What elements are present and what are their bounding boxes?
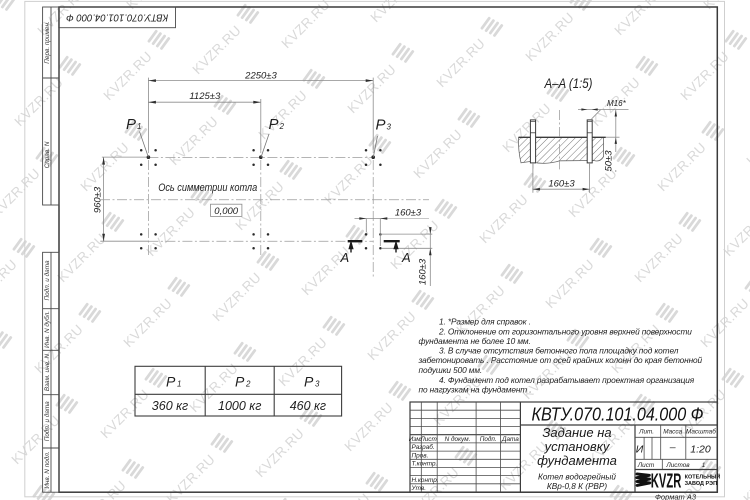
svg-text:KVZR.RU: KVZR.RU (365, 309, 419, 363)
svg-text:Перв. примен.: Перв. примен. (44, 21, 51, 63)
svg-text:Разраб.: Разраб. (412, 443, 435, 451)
svg-text:KVZR.RU: KVZR.RU (276, 335, 330, 389)
svg-text:A–A (1:5): A–A (1:5) (544, 75, 593, 91)
svg-text:KVZR.RU: KVZR.RU (342, 400, 396, 454)
svg-text:Справ. N: Справ. N (44, 141, 51, 168)
svg-text:забетонировать . Расстояние о: забетонировать . Расстояние от осей край… (418, 355, 703, 365)
svg-text:KVZR.RU: KVZR.RU (190, 23, 244, 77)
svg-text:1: 1 (702, 462, 706, 469)
svg-text:KVZR.RU: KVZR.RU (477, 192, 531, 246)
svg-text:P: P (304, 374, 314, 390)
svg-text:KVZR.RU: KVZR.RU (678, 49, 732, 103)
svg-text:KVZR.RU: KVZR.RU (78, 140, 132, 194)
svg-text:КВр-0,8 К (РВР): КВр-0,8 К (РВР) (547, 482, 607, 491)
svg-text:N докум.: N докум. (445, 435, 471, 443)
svg-text:KVZR.RU: KVZR.RU (566, 166, 620, 220)
svg-text:Подп. и дата: Подп. и дата (43, 401, 51, 441)
svg-text:KVZR.RU: KVZR.RU (322, 153, 376, 207)
svg-text:ЗАВОД РЭП: ЗАВОД РЭП (685, 481, 717, 487)
svg-text:Котел водогрейный: Котел водогрейный (538, 473, 616, 482)
svg-text:Масса: Масса (663, 428, 682, 435)
svg-text:Листов: Листов (665, 462, 690, 469)
svg-text:KVZR.RU: KVZR.RU (121, 296, 175, 350)
svg-text:KVZR.RU: KVZR.RU (523, 10, 577, 64)
svg-text:Масштаб: Масштаб (686, 427, 716, 435)
svg-text:1. *Размер для справок .: 1. *Размер для справок . (439, 316, 531, 326)
svg-text:KVZR.RU: KVZR.RU (0, 257, 20, 311)
svg-text:160±3: 160±3 (417, 258, 428, 285)
svg-text:Т.контр.: Т.контр. (412, 461, 438, 468)
svg-text:P: P (166, 374, 176, 390)
svg-text:KVZR.RU: KVZR.RU (101, 49, 155, 103)
svg-text:КВТУ.070.101.04.000 Ф: КВТУ.070.101.04.000 Ф (66, 12, 168, 24)
svg-text:KVZR.RU: KVZR.RU (655, 140, 709, 194)
svg-text:КОТЕЛЬНЫЙ: КОТЕЛЬНЫЙ (685, 473, 721, 481)
svg-text:1: 1 (177, 380, 181, 389)
svg-text:1000 кг: 1000 кг (218, 399, 261, 413)
svg-text:Задание на: Задание на (542, 425, 611, 440)
svg-text:KVZR.RU: KVZR.RU (12, 75, 66, 129)
svg-text:Утв.: Утв. (411, 485, 427, 492)
svg-text:1:20: 1:20 (690, 444, 711, 456)
svg-text:KVZR.RU: KVZR.RU (210, 270, 264, 324)
svg-text:1125±3: 1125±3 (189, 91, 221, 102)
svg-text:M16*: M16* (607, 99, 627, 108)
svg-text:Пров.: Пров. (412, 452, 429, 459)
svg-text:И: И (636, 444, 644, 456)
svg-text:3: 3 (315, 380, 320, 389)
svg-text:KVZR.RU: KVZR.RU (632, 231, 686, 285)
svg-text:KVZR.RU: KVZR.RU (0, 166, 43, 220)
svg-text:KVZR.RU: KVZR.RU (253, 426, 307, 480)
svg-text:Инв. N дубл.: Инв. N дубл. (43, 311, 51, 348)
svg-text:P: P (269, 116, 279, 133)
svg-text:0,000: 0,000 (214, 206, 238, 217)
svg-text:KVZR.RU: KVZR.RU (698, 296, 750, 350)
svg-text:КВТУ.070.101.04.000 Ф: КВТУ.070.101.04.000 Ф (532, 405, 704, 425)
svg-text:P: P (235, 374, 245, 390)
svg-text:KVZR.RU: KVZR.RU (434, 36, 488, 90)
svg-text:P: P (376, 117, 386, 134)
svg-text:по нагрузкам на фундамент .: по нагрузкам на фундамент . (419, 384, 532, 394)
svg-text:KVZR.RU: KVZR.RU (167, 114, 221, 168)
svg-text:KVZR.RU: KVZR.RU (9, 413, 63, 467)
svg-text:KVZR.RU: KVZR.RU (741, 452, 750, 500)
svg-text:KVZR.RU: KVZR.RU (345, 62, 399, 116)
svg-text:фундамента не более 10 мм.: фундамента не более 10 мм. (419, 336, 531, 346)
svg-text:Н.контр.: Н.контр. (412, 477, 439, 484)
svg-text:KVZR.RU: KVZR.RU (368, 0, 422, 25)
svg-text:1: 1 (137, 122, 141, 131)
svg-text:Подп.: Подп. (480, 435, 497, 443)
svg-text:3: 3 (387, 123, 392, 132)
svg-text:Взам. инв. N: Взам. инв. N (44, 354, 51, 392)
svg-text:KVZR.RU: KVZR.RU (411, 127, 465, 181)
svg-text:Лит.: Лит. (638, 428, 654, 435)
svg-text:фундамента: фундамента (537, 453, 617, 468)
svg-text:A: A (340, 250, 350, 265)
svg-text:160±3: 160±3 (395, 208, 422, 219)
svg-text:установку: установку (544, 439, 611, 454)
svg-text:Дата: Дата (501, 436, 519, 443)
svg-text:Ось симметрии котла: Ось симметрии котла (158, 182, 257, 194)
svg-text:Лист: Лист (419, 436, 437, 443)
svg-text:KVZR.RU: KVZR.RU (744, 114, 750, 168)
svg-text:KVZR: KVZR (651, 469, 682, 492)
svg-text:2: 2 (279, 122, 285, 131)
svg-text:2: 2 (245, 380, 251, 389)
svg-text:160±3: 160±3 (548, 179, 575, 190)
svg-text:360 кг: 360 кг (152, 399, 188, 413)
svg-text:–: – (669, 442, 676, 454)
svg-text:P: P (126, 116, 136, 133)
svg-text:KVZR.RU: KVZR.RU (55, 231, 109, 285)
svg-text:KVZR.RU: KVZR.RU (144, 205, 198, 259)
svg-text:2250±3: 2250±3 (244, 71, 277, 82)
svg-text:Формат А3: Формат А3 (655, 493, 697, 500)
svg-text:KVZR.RU: KVZR.RU (543, 257, 597, 311)
svg-text:KVZR.RU: KVZR.RU (612, 0, 666, 38)
svg-text:460 кг: 460 кг (290, 399, 326, 413)
svg-text:Лист: Лист (637, 462, 655, 469)
svg-text:Подп. и дата: Подп. и дата (43, 260, 51, 300)
svg-text:подушки 500 мм.: подушки 500 мм. (419, 365, 483, 375)
svg-text:A: A (401, 250, 411, 265)
svg-text:Инв. N подл.: Инв. N подл. (43, 451, 51, 488)
svg-text:50±3: 50±3 (603, 150, 614, 172)
svg-text:KVZR.RU: KVZR.RU (256, 88, 310, 142)
